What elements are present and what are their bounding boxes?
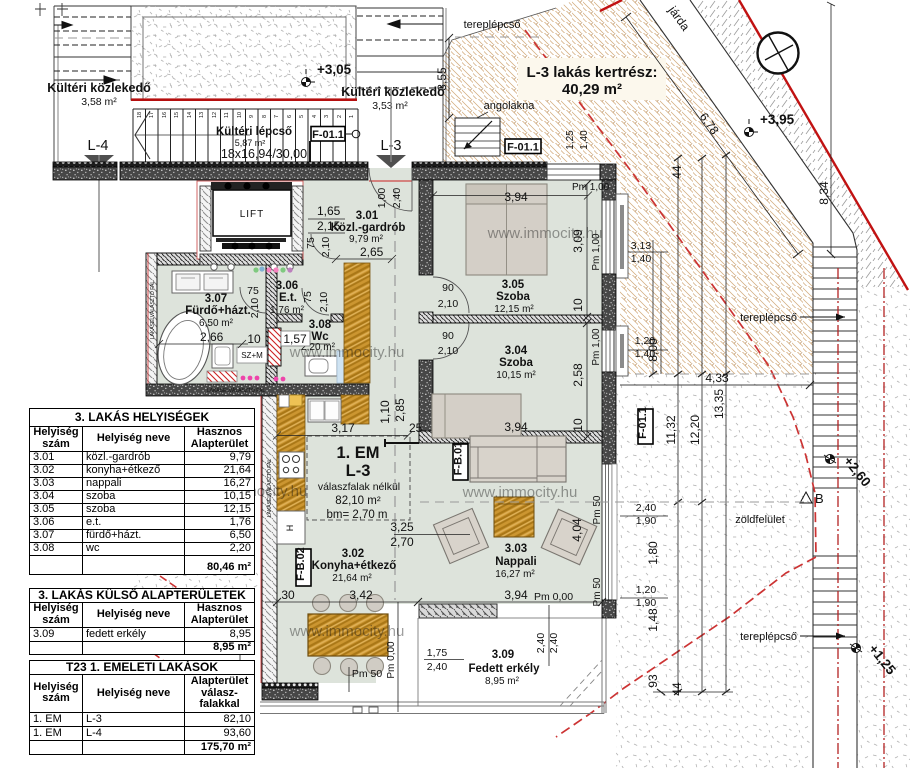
svg-text:2,10: 2,10 (318, 292, 330, 313)
svg-text:15: 15 (174, 112, 180, 118)
svg-text:Kültéri közlekedő: Kültéri közlekedő (341, 85, 445, 99)
svg-text:F-01.1: F-01.1 (637, 407, 649, 439)
svg-text:90: 90 (442, 330, 454, 342)
svg-text:75: 75 (247, 285, 259, 297)
svg-text:Szoba: Szoba (499, 357, 533, 369)
svg-text:4: 4 (312, 115, 318, 118)
svg-text:1,20: 1,20 (636, 584, 657, 596)
svg-text:10: 10 (571, 418, 585, 432)
svg-text:10: 10 (571, 298, 585, 312)
svg-text:14: 14 (187, 112, 193, 118)
svg-text:LAKÁSELVÁLASZTÓ FAL: LAKÁSELVÁLASZTÓ FAL (207, 387, 265, 394)
svg-text:2,40: 2,40 (548, 633, 560, 654)
svg-text:8: 8 (262, 115, 268, 118)
svg-text:SZ+M: SZ+M (241, 351, 263, 360)
svg-text:6,50 m²: 6,50 m² (199, 318, 234, 329)
svg-text:1,10: 1,10 (378, 400, 392, 424)
svg-text:3.07: 3.07 (205, 293, 227, 305)
svg-text:40,29 m²: 40,29 m² (562, 81, 622, 98)
svg-text:Pm 1,00: Pm 1,00 (591, 328, 602, 366)
svg-text:3,53 m²: 3,53 m² (372, 100, 408, 112)
svg-text:1,80: 1,80 (646, 541, 660, 565)
svg-text:3,94: 3,94 (504, 190, 528, 204)
svg-text:13: 13 (199, 112, 205, 118)
svg-text:Kültéri közlekedő: Kültéri közlekedő (47, 81, 151, 95)
svg-text:3,13: 3,13 (631, 240, 652, 252)
svg-text:3.01: 3.01 (356, 210, 379, 222)
svg-text:zöldfelület: zöldfelület (735, 514, 785, 526)
svg-text:44: 44 (670, 682, 684, 696)
svg-text:3.06: 3.06 (276, 280, 298, 292)
svg-text:1,90: 1,90 (636, 597, 657, 609)
svg-text:5: 5 (299, 115, 305, 118)
svg-text:www.immocity.hu: www.immocity.hu (289, 344, 405, 361)
svg-text:LAKÁSELVÁLASZTÓ FAL: LAKÁSELVÁLASZTÓ FAL (149, 281, 156, 339)
svg-text:2,66: 2,66 (200, 330, 224, 344)
svg-text:F-01.1: F-01.1 (312, 129, 344, 141)
svg-text:12,20: 12,20 (688, 415, 702, 445)
svg-text:2,70: 2,70 (390, 535, 414, 549)
svg-text:F-B.02: F-B.02 (295, 547, 307, 581)
svg-text:2,40: 2,40 (636, 502, 657, 514)
svg-text:82,10 m²: 82,10 m² (335, 495, 381, 507)
svg-text:2,15: 2,15 (317, 219, 341, 233)
svg-text:13,35: 13,35 (712, 389, 726, 419)
svg-text:2,58: 2,58 (571, 363, 585, 387)
svg-text:25: 25 (409, 421, 423, 435)
svg-text:3,17: 3,17 (331, 421, 355, 435)
svg-text:1. EM: 1. EM (336, 444, 379, 462)
svg-text:8,95 m²: 8,95 m² (485, 676, 520, 687)
svg-text:18x16,94/30,00: 18x16,94/30,00 (221, 147, 307, 161)
svg-text:Szoba: Szoba (496, 291, 530, 303)
svg-text:Konyha+étkező: Konyha+étkező (312, 560, 397, 572)
svg-text:1,40: 1,40 (631, 253, 652, 265)
svg-text:4,33: 4,33 (705, 371, 729, 385)
svg-text:Közl.-gardrób: Közl.-gardrób (331, 222, 406, 234)
svg-text:6: 6 (287, 115, 293, 118)
svg-text:75: 75 (302, 291, 314, 303)
svg-text:11: 11 (224, 112, 230, 118)
svg-text:2,40: 2,40 (427, 661, 448, 673)
svg-text:+3,05: +3,05 (317, 62, 352, 77)
svg-text:3.09: 3.09 (492, 649, 514, 661)
svg-text:F-B.01: F-B.01 (453, 442, 465, 476)
svg-text:L-3: L-3 (346, 462, 371, 480)
svg-text:3: 3 (324, 115, 330, 118)
svg-text:16: 16 (162, 112, 168, 118)
svg-text:www.immocity.hu: www.immocity.hu (487, 225, 603, 242)
svg-text:17: 17 (149, 112, 155, 118)
svg-text:93: 93 (646, 674, 660, 688)
svg-text:Kültéri lépcső: Kültéri lépcső (216, 126, 292, 138)
svg-text:2,65: 2,65 (360, 245, 384, 259)
svg-text:3.08: 3.08 (309, 319, 332, 331)
svg-text:90: 90 (442, 282, 454, 294)
svg-text:1,20: 1,20 (635, 335, 656, 347)
svg-text:10,15 m²: 10,15 m² (496, 370, 536, 381)
svg-text:www.immocity.hu: www.immocity.hu (462, 484, 578, 501)
svg-text:3,42: 3,42 (349, 588, 373, 602)
svg-text:2: 2 (337, 115, 343, 118)
svg-text:12: 12 (212, 112, 218, 118)
svg-text:H: H (285, 525, 295, 532)
svg-text:18: 18 (137, 112, 143, 118)
svg-text:Pm 1,00: Pm 1,00 (572, 182, 610, 193)
svg-text:3,94: 3,94 (504, 420, 528, 434)
svg-text:1,90: 1,90 (636, 515, 657, 527)
svg-text:Fedett erkély: Fedett erkély (469, 663, 541, 675)
svg-text:Pm 0,00: Pm 0,00 (534, 591, 573, 603)
svg-text:tereplépcső: tereplépcső (740, 631, 797, 643)
svg-text:3,94: 3,94 (504, 588, 528, 602)
svg-text:3,58 m²: 3,58 m² (81, 96, 117, 108)
svg-text:8,34: 8,34 (817, 181, 831, 205)
svg-text:tereplépcső: tereplépcső (740, 312, 797, 324)
svg-text:LIFT: LIFT (240, 209, 265, 220)
svg-text:3.03: 3.03 (505, 543, 527, 555)
svg-text:tereplépcső: tereplépcső (464, 19, 521, 31)
svg-text:7: 7 (274, 115, 280, 118)
svg-text:1,00: 1,00 (376, 188, 388, 209)
svg-text:75: 75 (305, 237, 317, 249)
svg-text:1,76 m²: 1,76 m² (270, 305, 305, 316)
svg-text:9,79 m²: 9,79 m² (349, 234, 384, 245)
svg-text:11,32: 11,32 (664, 415, 678, 444)
svg-text:10: 10 (237, 112, 243, 118)
svg-text:angolakna: angolakna (484, 100, 536, 112)
svg-text:2,40: 2,40 (391, 188, 403, 209)
svg-text:2,10: 2,10 (438, 298, 459, 310)
svg-text:1,40: 1,40 (579, 130, 590, 150)
svg-text:Pm 0,00: Pm 0,00 (386, 641, 397, 679)
svg-text:12,15 m²: 12,15 m² (494, 304, 534, 315)
svg-text:F-01.1: F-01.1 (507, 142, 539, 154)
svg-text:Pm 50: Pm 50 (592, 495, 603, 524)
svg-text:bm= 2,70 m: bm= 2,70 m (326, 509, 387, 521)
svg-text:16,27 m²: 16,27 m² (495, 569, 535, 580)
svg-text:1,48: 1,48 (646, 608, 660, 632)
svg-text:10: 10 (247, 332, 261, 346)
svg-text:L-4: L-4 (88, 138, 109, 154)
svg-text:válaszfalak nélkül: válaszfalak nélkül (318, 481, 400, 493)
svg-text:Nappali: Nappali (495, 556, 537, 568)
svg-text:2,40: 2,40 (535, 633, 547, 654)
svg-text:3.02: 3.02 (342, 548, 364, 560)
svg-text:1,25: 1,25 (565, 130, 576, 150)
svg-text:2,10: 2,10 (249, 298, 261, 319)
svg-text:21,64 m²: 21,64 m² (332, 573, 372, 584)
svg-text:44: 44 (670, 165, 684, 179)
svg-text:1,65: 1,65 (317, 204, 341, 218)
svg-text:2,85: 2,85 (393, 398, 407, 422)
svg-text:3.04: 3.04 (505, 345, 528, 357)
svg-text:9: 9 (249, 115, 255, 118)
svg-text:Fürdő+házt.: Fürdő+házt. (185, 305, 251, 317)
svg-text:2,10: 2,10 (320, 237, 332, 258)
svg-text:E.t.: E.t. (279, 292, 297, 304)
svg-text:1: 1 (349, 115, 355, 118)
svg-text:B: B (815, 491, 824, 506)
svg-text:www.immocity.hu: www.immocity.hu (289, 623, 405, 640)
svg-text:2,10: 2,10 (438, 345, 459, 357)
svg-text:3,25: 3,25 (390, 520, 414, 534)
svg-text:Pm 50: Pm 50 (352, 668, 383, 680)
svg-text:+3,95: +3,95 (760, 112, 795, 127)
svg-text:3.05: 3.05 (502, 279, 525, 291)
svg-text:30: 30 (281, 588, 295, 602)
svg-text:4,04: 4,04 (570, 518, 584, 542)
svg-text:L-3 lakás kertrész:: L-3 lakás kertrész: (527, 64, 658, 81)
svg-text:1,75: 1,75 (427, 647, 448, 659)
